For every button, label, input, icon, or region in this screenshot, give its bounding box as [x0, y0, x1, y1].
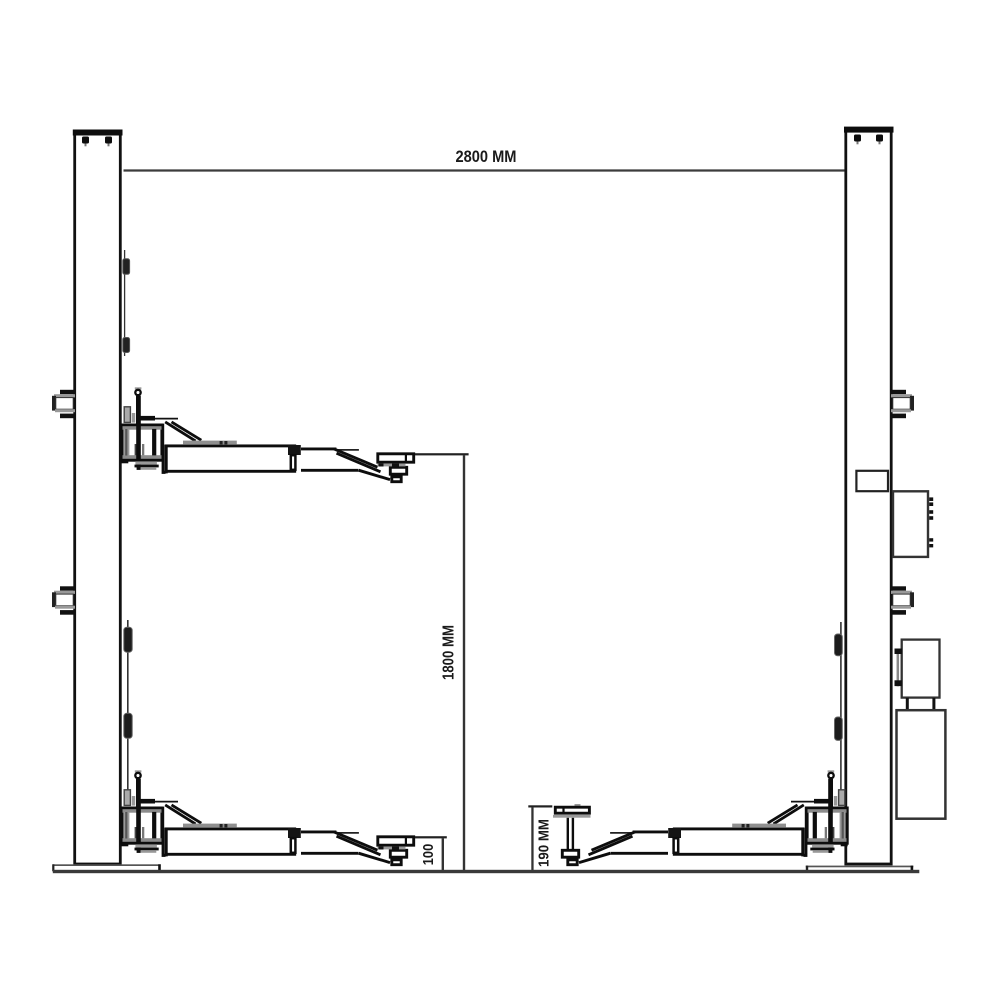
svg-text:1800 MM: 1800 MM — [441, 625, 458, 680]
svg-text:2800 MM: 2800 MM — [456, 147, 517, 166]
svg-text:190 MM: 190 MM — [536, 819, 553, 867]
svg-text:100: 100 — [420, 844, 437, 866]
